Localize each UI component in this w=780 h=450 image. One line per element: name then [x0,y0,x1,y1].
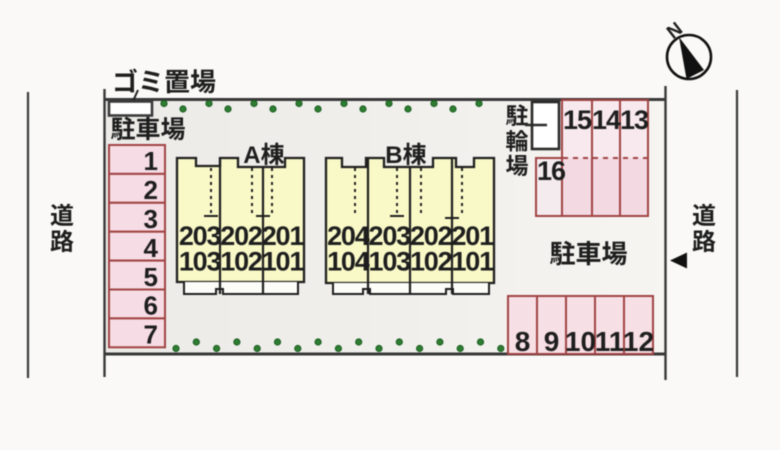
svg-text:10: 10 [565,326,596,357]
svg-text:2: 2 [144,175,158,205]
svg-text:9: 9 [544,326,560,357]
svg-text:8: 8 [515,326,531,357]
svg-text:12: 12 [623,326,654,357]
svg-text:A: A [243,142,260,169]
svg-text:11: 11 [595,326,625,357]
svg-text:14: 14 [592,105,621,135]
svg-text:16: 16 [537,156,566,186]
svg-text:5: 5 [144,262,158,292]
svg-text:1: 1 [144,146,158,176]
svg-text:13: 13 [620,105,649,135]
svg-text:103102101: 103102101 [179,247,305,277]
svg-text:6: 6 [144,291,158,321]
svg-text:4: 4 [144,233,159,263]
svg-text:7: 7 [144,320,158,350]
svg-text:104103102101: 104103102101 [327,247,494,277]
svg-text:B: B [385,142,402,169]
svg-text:15: 15 [563,105,592,135]
svg-text:3: 3 [144,204,158,234]
